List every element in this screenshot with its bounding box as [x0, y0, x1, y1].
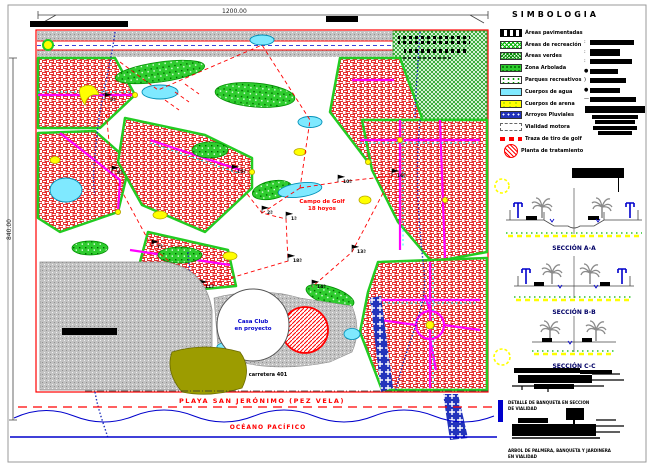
illegible-text-block: [593, 126, 637, 130]
parks-swatch: [500, 76, 522, 84]
top-dimension: 1200.00: [30, 8, 488, 27]
illegible-text-bar: [590, 40, 634, 45]
detail-1-thumbnail: [508, 362, 638, 396]
golf-course-label-1: Campo de Golf: [299, 199, 345, 205]
recreation-swatch: [500, 41, 522, 49]
casa-club-label-1: Casa Club: [238, 319, 268, 325]
illegible-text-block: [598, 131, 632, 135]
illegible-text-bar: [590, 49, 620, 56]
casa-club-label-2: en proyecto: [235, 326, 272, 332]
roundabout: [43, 40, 53, 50]
detail-2-caption-1: ARBOL DE PALMERA, BANQUETA Y JARDINERA: [508, 449, 644, 454]
detail-2-caption-2: EN VIALIDAD: [508, 455, 644, 460]
hole-label: 10ª: [343, 179, 352, 185]
dim-top-label: 1200.00: [222, 8, 247, 15]
illegible-text-bar: [590, 69, 618, 74]
section-c-c-drawing: [502, 314, 646, 358]
illegible-text-block: [585, 106, 645, 113]
illegible-text-bar: [590, 78, 626, 83]
illegible-title-bar: [30, 21, 128, 27]
paved-swatch: [500, 29, 522, 37]
hole-label: 13ª: [357, 249, 366, 255]
legend-notes-column: : : : ● ) ● —: [584, 38, 646, 135]
hole-label: 2ª: [267, 210, 273, 216]
illegible-text-block: [592, 115, 638, 119]
illegible-area-label-bar: [62, 328, 117, 335]
dim-left-label: 840.00: [6, 219, 13, 240]
detail-2-thumbnail: [508, 406, 638, 444]
hole-label: 5ª: [110, 97, 116, 103]
detail-1-caption-1: DETALLE DE BANQUETA EN SECCION: [508, 401, 644, 406]
legend-item: Planta de tratamiento: [500, 145, 648, 157]
wooded-zone-swatch: [500, 64, 522, 72]
hole-label: 7ª: [157, 244, 163, 250]
hole-label: 16ª: [397, 173, 406, 179]
illegible-text-bar: [590, 97, 636, 102]
section-b-b: SECCIÓN B-B: [500, 254, 648, 316]
hole-label: 18ª: [293, 258, 302, 264]
legend-panel: SIMBOLOGIA Áreas pavimentadas Áreas de r…: [500, 8, 648, 460]
illegible-marks-row: [398, 36, 470, 44]
hole-label: 11ª: [205, 284, 214, 290]
illegible-callout-bar: [572, 168, 624, 178]
hole-label: 14ª: [317, 284, 326, 290]
hole-label: 15ª: [237, 169, 246, 175]
roadway-swatch: [500, 123, 522, 131]
hole-label: 8ª: [117, 170, 123, 176]
beach-label: PLAYA SAN JERÓNIMO (PEZ VELA): [179, 396, 345, 405]
sand-swatch: [500, 100, 522, 108]
treatment-plant-swatch: [504, 144, 518, 158]
hole-label: 1ª: [291, 216, 297, 222]
illegible-marks-row: [404, 47, 466, 53]
streams-swatch: [500, 111, 522, 119]
section-b-b-drawing: [502, 254, 646, 304]
illegible-text-block: [595, 120, 635, 124]
illegible-text-bar: [590, 59, 632, 64]
legend-title: SIMBOLOGIA: [512, 10, 648, 19]
green-areas-swatch: [500, 52, 522, 60]
carretera-label: carretera 401: [249, 372, 288, 378]
coastline: [14, 410, 494, 422]
section-a-a-label: SECCIÓN A-A: [500, 245, 648, 252]
dune-area: [170, 347, 247, 394]
section-a-a-drawing: [502, 186, 646, 240]
ocean-label: OCÉANO PACÍFICO: [230, 423, 306, 431]
detail-drawing-2: ARBOL DE PALMERA, BANQUETA Y JARDINERA E…: [508, 406, 644, 459]
golf-trace-swatch: [500, 137, 522, 141]
section-a-a: SECCIÓN A-A: [500, 186, 648, 252]
arroyo-channel: [443, 394, 468, 440]
detail-drawing-1: DETALLE DE BANQUETA EN SECCION DE VIALID…: [508, 362, 644, 411]
site-plan-sheet: 1200.00 840.00: [0, 0, 653, 468]
golf-course-label-2: 18 hoyos: [308, 206, 337, 212]
water-swatch: [500, 88, 522, 96]
illegible-text-bar: [590, 88, 620, 93]
illegible-note-bar: [326, 16, 358, 22]
